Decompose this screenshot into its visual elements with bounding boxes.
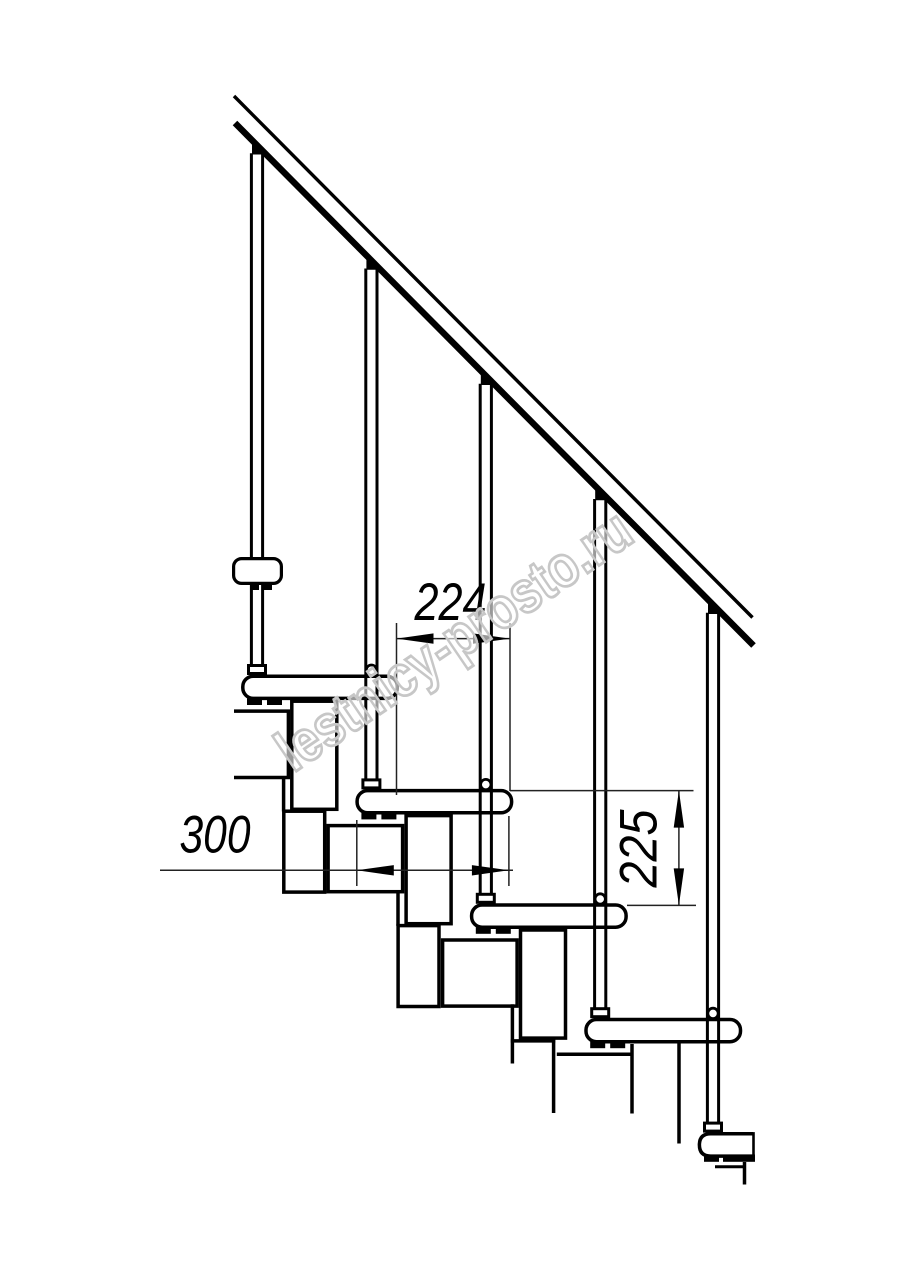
svg-text:300: 300 (180, 806, 251, 865)
svg-text:225: 225 (610, 809, 669, 888)
